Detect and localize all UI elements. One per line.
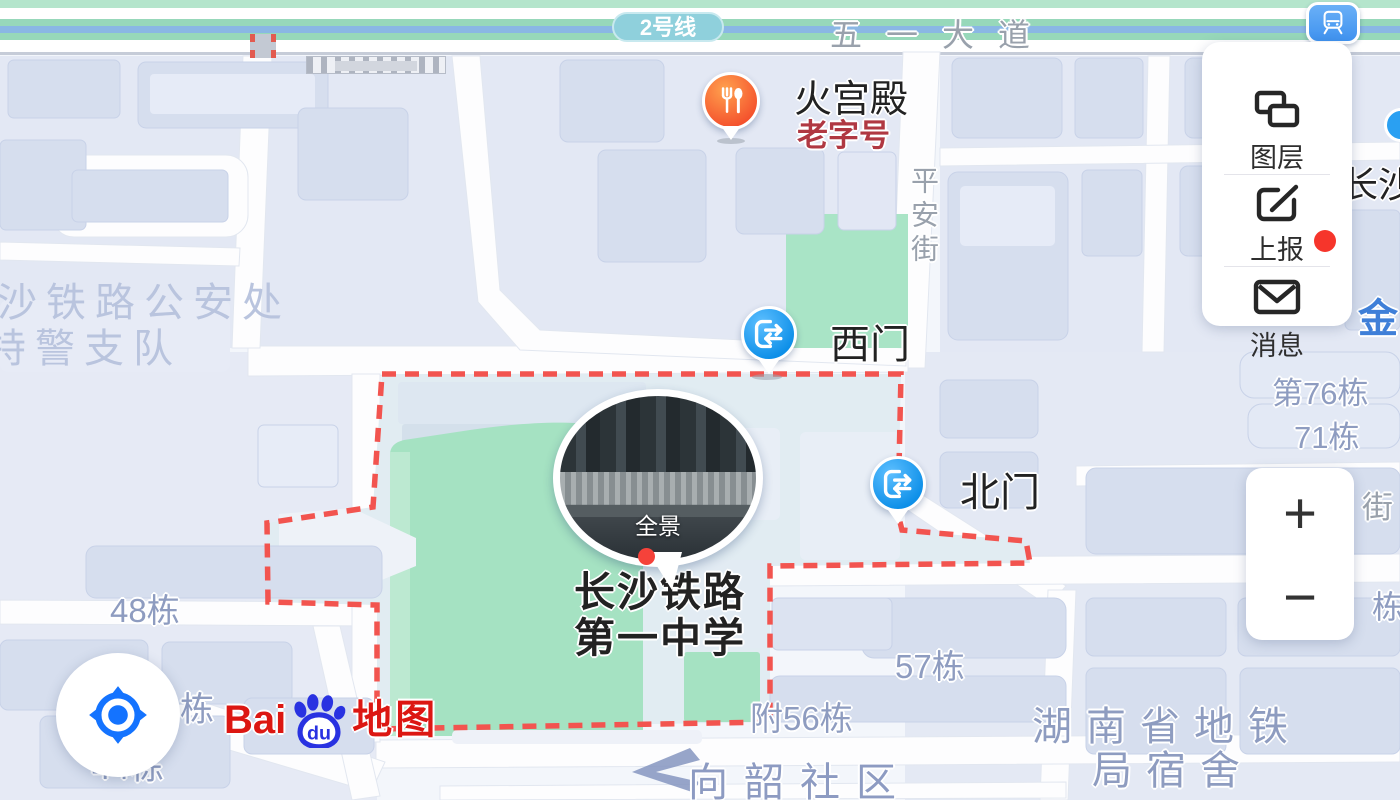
layers-button[interactable]: 图层 (1202, 42, 1352, 174)
messages-button[interactable]: 消息 (1202, 266, 1352, 326)
message-envelope-icon (1253, 278, 1301, 316)
zoom-in-button[interactable]: + (1246, 480, 1354, 547)
unread-badge (1314, 230, 1336, 252)
logo-bai-text: Bai (224, 694, 286, 746)
locate-target-icon (85, 682, 151, 748)
west-gate-marker[interactable] (741, 306, 797, 362)
marker-shadow (752, 374, 782, 380)
poi-police-line2: 特警支队 (0, 316, 182, 374)
messages-label: 消息 (1202, 324, 1352, 363)
map-view[interactable]: 2号线 五一大道 平安街 街 火宫殿 老字号 长沙铁路公安处 特警支队 西门 北… (0, 0, 1400, 800)
north-gate-marker-tail (888, 510, 908, 524)
label-fu56dong: 附56栋 (750, 692, 853, 740)
layers-icon (1254, 90, 1300, 130)
baidu-maps-logo: Bai du 地图 (224, 694, 438, 746)
poi-restaurant-tag: 老字号 (797, 110, 890, 155)
label-community: 向韶社区 (688, 750, 912, 800)
locate-button[interactable] (56, 653, 180, 777)
crossing-icon (250, 34, 276, 58)
map-tools-panel: 图层 上报 消息 (1202, 42, 1352, 326)
fork-spoon-icon (714, 84, 748, 118)
poi-north-gate-label[interactable]: 北门 (960, 460, 1040, 518)
metro-station-icon[interactable] (1306, 2, 1360, 44)
street-pingan: 平安街 (903, 166, 943, 268)
label-dorm-line2: 局宿舍 (1092, 738, 1254, 796)
location-red-dot (638, 548, 655, 565)
train-icon (1318, 9, 1348, 37)
restaurant-marker[interactable] (702, 72, 760, 130)
label-57dong: 57栋 (895, 640, 965, 688)
platform-structure (306, 56, 446, 74)
metro-line-badge[interactable]: 2号线 (612, 12, 724, 42)
gate-icon (752, 317, 786, 351)
restaurant-marker-tail (721, 126, 741, 140)
report-edit-icon (1254, 182, 1300, 222)
label-48dong: 48栋 (110, 584, 180, 632)
street-wuyi-avenue: 五一大道 (830, 10, 1054, 56)
logo-map-word: 地图 (352, 694, 438, 746)
baidu-paw-icon: du (288, 694, 350, 748)
label-dong-partial: 栋 (1372, 582, 1400, 628)
street-jie-partial: 街 (1362, 482, 1393, 527)
label-71dong: 71栋 (1294, 412, 1359, 457)
label-45dong-partial: 栋 (180, 682, 214, 731)
layers-label: 图层 (1202, 136, 1352, 175)
report-button[interactable]: 上报 (1202, 174, 1352, 266)
west-gate-marker-tail (759, 360, 779, 374)
logo-du-text: du (307, 723, 331, 745)
north-gate-marker[interactable] (870, 456, 926, 512)
panorama-label: 全景 (553, 507, 763, 541)
poi-west-gate-label[interactable]: 西门 (830, 312, 910, 370)
label-jin-partial: 金 (1358, 286, 1398, 344)
gate-icon (881, 467, 915, 501)
school-name-line2[interactable]: 第一中学 (574, 604, 746, 664)
zoom-panel: + − (1246, 468, 1354, 640)
panorama-bubble[interactable]: 全景 (553, 389, 763, 567)
label-76dong: 第76栋 (1272, 368, 1368, 413)
zoom-out-button[interactable]: − (1246, 564, 1354, 631)
